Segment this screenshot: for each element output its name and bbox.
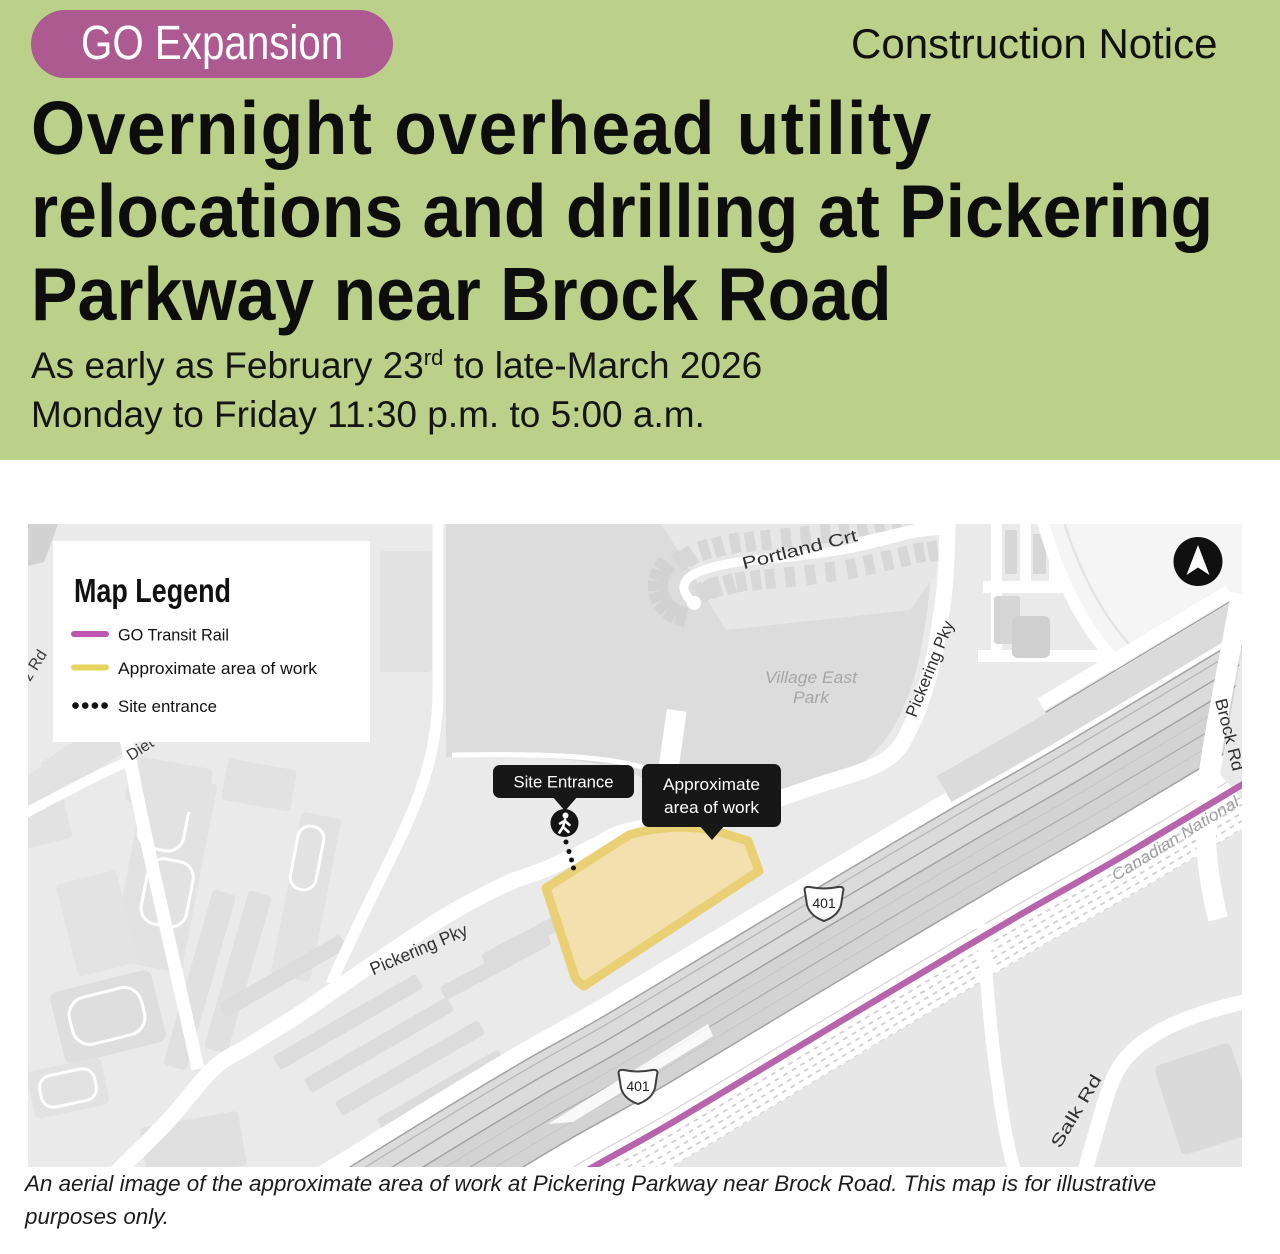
svg-text:GO Transit Rail: GO Transit Rail <box>118 626 229 645</box>
svg-text:Village East: Village East <box>765 668 858 687</box>
svg-text:Approximate: Approximate <box>663 775 760 794</box>
svg-text:401: 401 <box>812 895 836 911</box>
svg-text:Approximate area of work: Approximate area of work <box>118 659 318 678</box>
svg-text:Park: Park <box>793 688 831 707</box>
svg-text:area of work: area of work <box>664 798 760 817</box>
svg-text:Site Entrance: Site Entrance <box>514 773 614 792</box>
svg-text:Site entrance: Site entrance <box>118 697 217 716</box>
svg-text:401: 401 <box>626 1078 650 1094</box>
svg-text:Map Legend: Map Legend <box>74 572 231 609</box>
